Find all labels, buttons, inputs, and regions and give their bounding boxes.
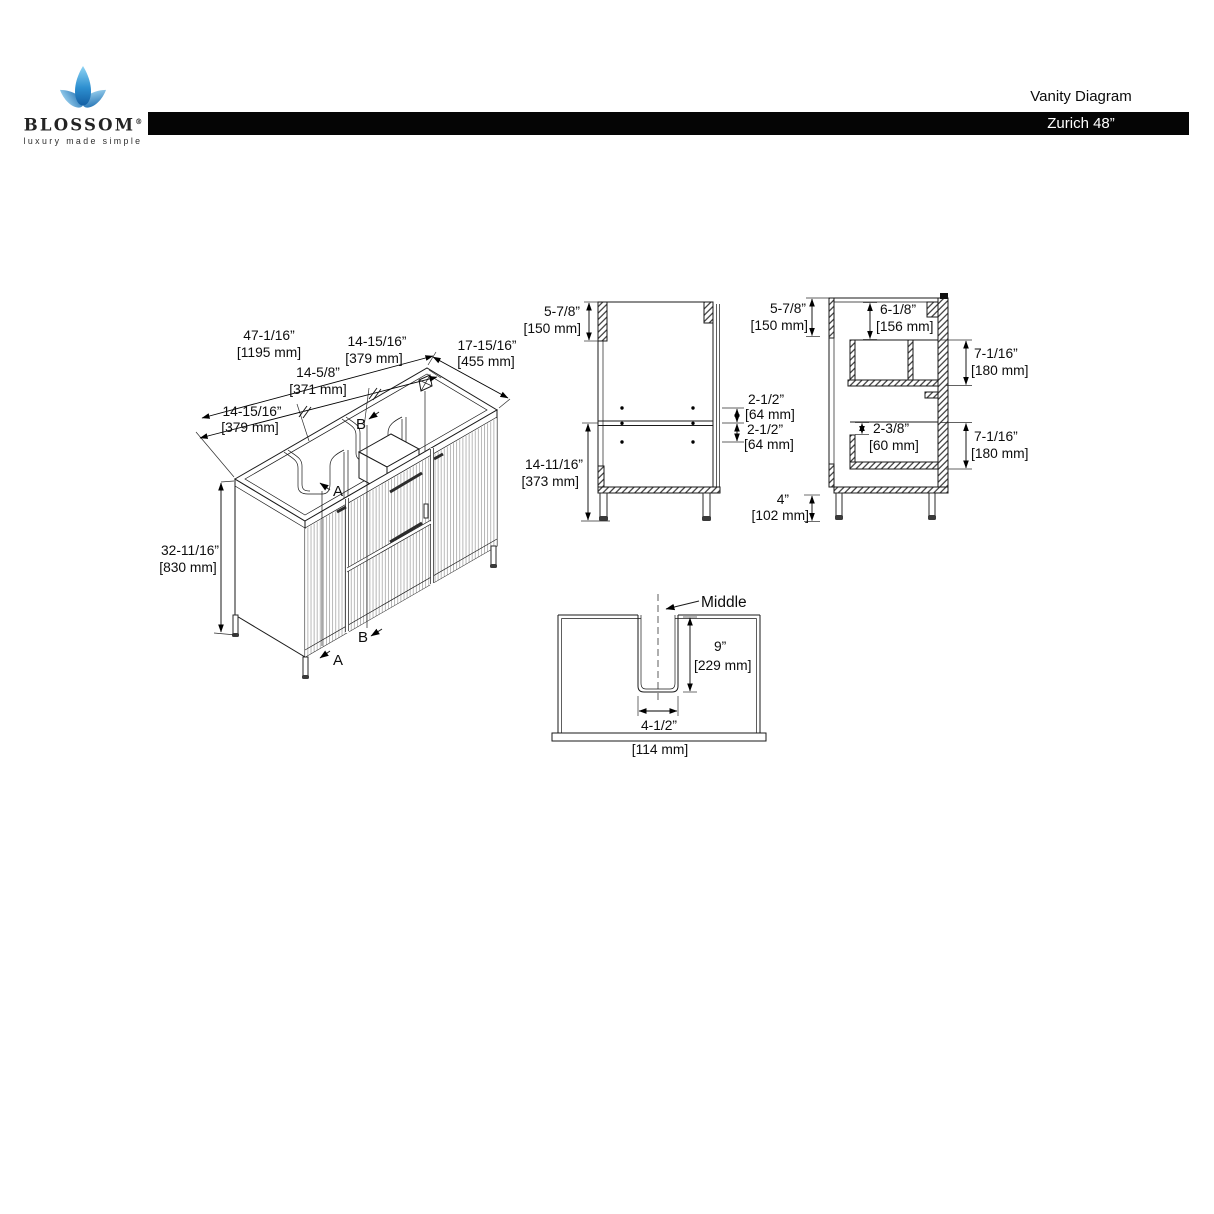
leg-back <box>929 493 935 517</box>
dim-slot-width-mm: [114 mm] <box>632 742 688 757</box>
dim-leg-mm: [102 mm] <box>751 508 809 523</box>
dim-top-inset-mm: [156 mm] <box>876 319 934 334</box>
leg-front <box>836 493 842 517</box>
dim-total-width-in: 47-1/16” <box>243 328 295 343</box>
leg-front-left <box>303 657 308 677</box>
dim-drawer-inner-in: 2-3/8” <box>873 421 909 436</box>
dim-seg-mid-mm: [371 mm] <box>289 382 347 397</box>
front-wall-top <box>829 298 834 338</box>
dim-upper-drawer-in: 7-1/16” <box>974 346 1018 361</box>
dim-top-rail-mm: [150 mm] <box>750 318 808 333</box>
dim-height-in: 32-11/16” <box>161 543 219 558</box>
dim-gap-lower-in: 2-1/2” <box>747 422 783 437</box>
dim-upper-drawer-mm: [180 mm] <box>971 363 1029 378</box>
section-label-a-bottom: A <box>333 652 343 669</box>
dim-total-width-mm: [1195 mm] <box>237 345 301 360</box>
leg-back-left <box>233 615 238 635</box>
dim-top-rail-mm: [150 mm] <box>523 321 581 336</box>
dim-below-shelf-in: 14-11/16” <box>525 457 583 472</box>
wall-cleat-front <box>598 302 607 341</box>
middle-label: Middle <box>701 594 747 611</box>
dim-seg-left-mm: [379 mm] <box>221 420 279 435</box>
dim-lower-drawer-mm: [180 mm] <box>971 446 1029 461</box>
dim-below-shelf-mm: [373 mm] <box>521 474 579 489</box>
dim-gap-lower-mm: [64 mm] <box>744 437 794 452</box>
section-label-a-top: A <box>333 483 343 500</box>
page: BLOSSOM® luxury made simple Vanity Diagr… <box>0 0 1214 1214</box>
upper-drawer-box <box>848 340 938 386</box>
leg-right <box>703 493 710 518</box>
dim-top-rail-in: 5-7/8” <box>544 304 580 319</box>
leg-left <box>600 493 607 518</box>
dim-top-inset-in: 6-1/8” <box>880 302 916 317</box>
dim-leg-in: 4” <box>777 492 790 507</box>
dim-seg-left-in: 14-15/16” <box>222 404 281 419</box>
dim-seg-right-in: 14-15/16” <box>347 334 406 349</box>
leg-front-right <box>491 546 496 566</box>
vanity-technical-drawing: A A B B <box>0 0 1214 1214</box>
back-panel <box>938 298 948 487</box>
section-label-b-bottom: B <box>358 629 368 646</box>
front-section-view: 5-7/8” [150 mm] 2-1/2” [64 mm] 2-1/2” [6… <box>521 302 820 523</box>
wall-cleat-back <box>704 302 713 323</box>
dim-depth-mm: [455 mm] <box>457 354 515 369</box>
leg-back-right <box>424 504 428 518</box>
bottom-panel <box>598 487 720 493</box>
dim-height-mm: [830 mm] <box>159 560 217 575</box>
dim-gap-upper-in: 2-1/2” <box>748 392 784 407</box>
dim-drawer-inner-mm: [60 mm] <box>869 438 919 453</box>
dim-lower-drawer-in: 7-1/16” <box>974 429 1018 444</box>
dim-seg-right-mm: [379 mm] <box>345 351 403 366</box>
dim-gap-upper-mm: [64 mm] <box>745 407 795 422</box>
dim-top-rail-in: 5-7/8” <box>770 301 806 316</box>
dim-slot-depth-mm: [229 mm] <box>694 658 752 673</box>
front-wall-bottom <box>829 464 834 487</box>
dim-seg-mid-in: 14-5/8” <box>296 365 340 380</box>
dim-slot-depth-in: 9” <box>714 639 727 654</box>
middle-leader <box>666 601 699 609</box>
bottom-panel <box>834 487 948 493</box>
dim-depth-in: 17-15/16” <box>457 338 516 353</box>
cutout-detail-view: Middle 9” [229 mm] 4-1/2” [114 mm] <box>552 594 766 757</box>
dim-slot-width-in: 4-1/2” <box>641 718 677 733</box>
bottom-flange <box>552 733 766 741</box>
isometric-view: A A B B <box>159 328 517 679</box>
